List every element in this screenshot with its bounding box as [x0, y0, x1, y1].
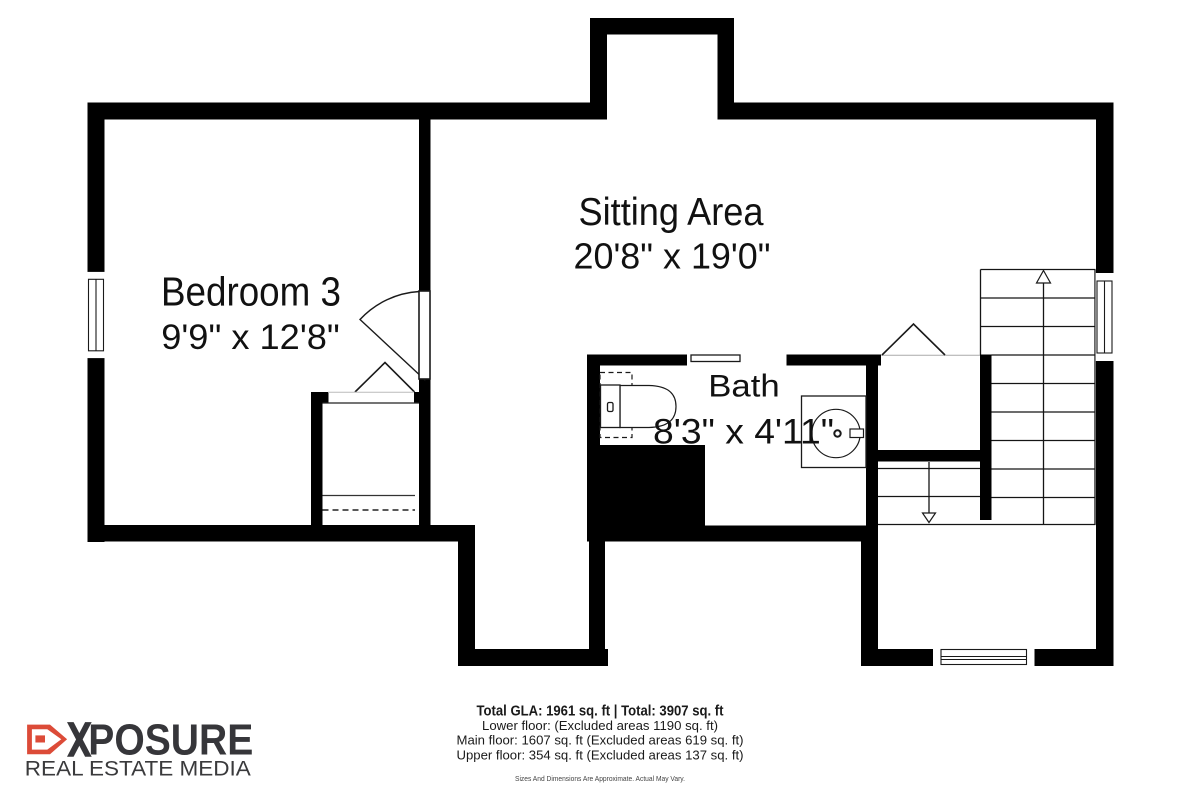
svg-text:Main floor: 1607 sq. ft (Exclu: Main floor: 1607 sq. ft (Excluded areas …	[457, 733, 744, 748]
svg-text:Lower floor: (Excluded areas 1: Lower floor: (Excluded areas 1190 sq. ft…	[482, 718, 718, 733]
svg-text:8'3" x 4'11": 8'3" x 4'11"	[653, 413, 834, 452]
svg-text:Upper floor: 354 sq. ft (Exclu: Upper floor: 354 sq. ft (Excluded areas …	[457, 747, 744, 762]
svg-text:Bedroom 3: Bedroom 3	[161, 269, 341, 315]
svg-text:9'9" x 12'8": 9'9" x 12'8"	[161, 318, 340, 357]
svg-text:REAL ESTATE MEDIA: REAL ESTATE MEDIA	[25, 758, 251, 781]
svg-text:Sizes And Dimensions Are Appro: Sizes And Dimensions Are Approximate. Ac…	[515, 774, 685, 783]
svg-text:Bath: Bath	[708, 368, 780, 404]
svg-text:Sitting Area: Sitting Area	[579, 191, 765, 234]
svg-text:20'8" x 19'0": 20'8" x 19'0"	[574, 236, 771, 277]
